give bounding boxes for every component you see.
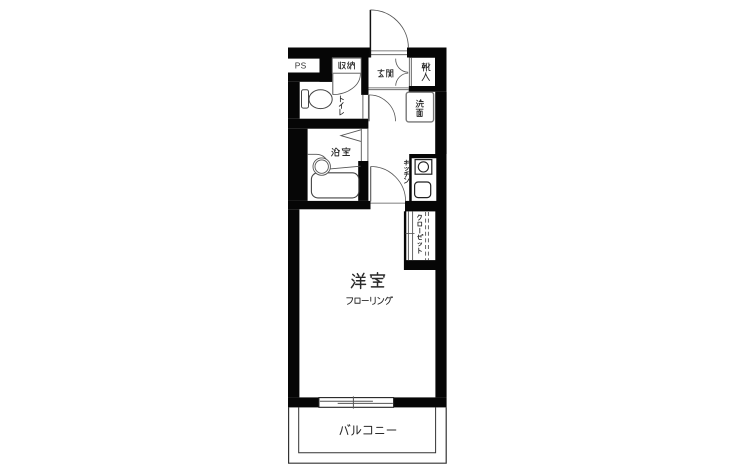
svg-text:PS: PS <box>295 61 307 71</box>
